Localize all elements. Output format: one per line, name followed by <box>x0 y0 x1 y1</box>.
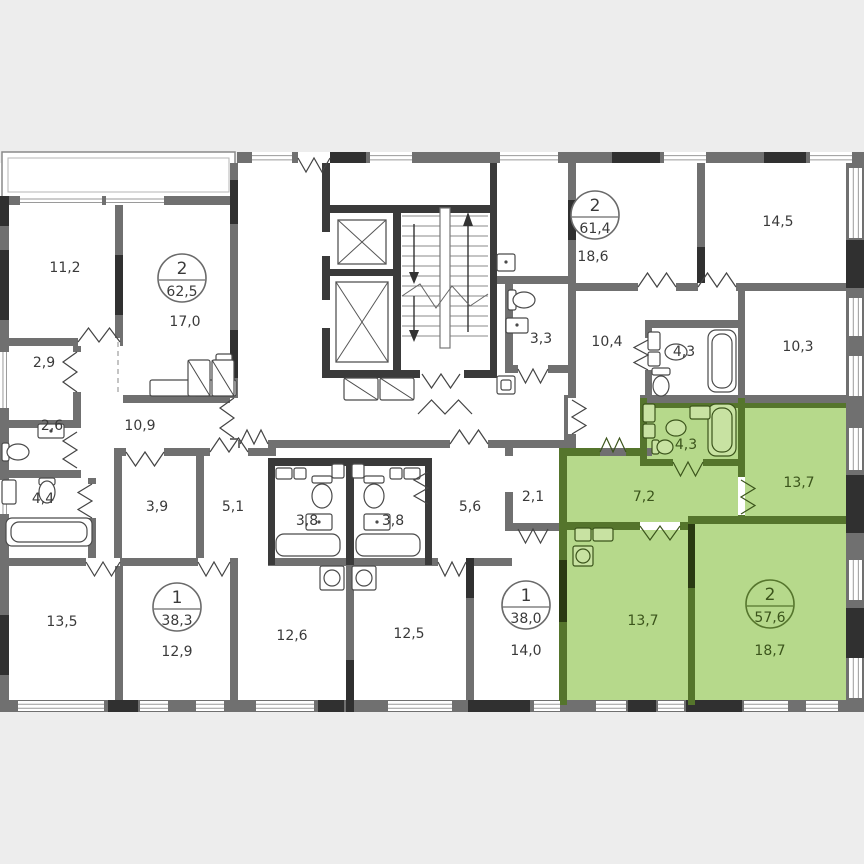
room-area-label: 5,1 <box>222 499 244 515</box>
apartment-badge-57-6-highlighted[interactable]: 2 57,6 <box>746 580 794 628</box>
room-area-label: 12,5 <box>393 626 424 642</box>
svg-text:1: 1 <box>172 588 183 608</box>
svg-text:61,4: 61,4 <box>579 221 610 237</box>
room-area-label: 13,7 <box>783 475 814 491</box>
room-area-label: 12,9 <box>161 644 192 660</box>
svg-text:38,3: 38,3 <box>161 613 192 629</box>
room-area-label: 12,6 <box>276 628 307 644</box>
room-area-label: 4,3 <box>673 344 695 360</box>
svg-text:57,6: 57,6 <box>754 610 785 626</box>
room-area-label: 3,8 <box>382 513 404 529</box>
room-area-label: 3,9 <box>146 499 168 515</box>
room-area-label: 18,7 <box>754 643 785 659</box>
room-area-label: 10,9 <box>124 418 155 434</box>
apartment-badge-38-3: 1 38,3 <box>153 583 201 631</box>
svg-text:62,5: 62,5 <box>166 284 197 300</box>
room-area-label: 3,3 <box>530 331 552 347</box>
room-area-label: 10,3 <box>782 339 813 355</box>
apartment-badge-62-5: 2 62,5 <box>158 254 206 302</box>
room-area-label: 4,4 <box>32 491 54 507</box>
room-area-label: 17,0 <box>169 314 200 330</box>
svg-text:38,0: 38,0 <box>510 611 541 627</box>
floor-plan-image[interactable]: 11,2 17,0 2,9 2,6 10,9 4,4 3,9 5,1 13,5 … <box>0 0 864 864</box>
room-area-label: 10,4 <box>591 334 622 350</box>
room-area-label: 18,6 <box>577 249 608 265</box>
room-area-label: 14,0 <box>510 643 541 659</box>
apartment-badge-61-4: 2 61,4 <box>571 191 619 239</box>
room-area-label: 2,9 <box>33 355 55 371</box>
svg-text:2: 2 <box>177 259 188 279</box>
room-area-label: 5,6 <box>459 499 481 515</box>
room-area-label: 4,3 <box>675 437 697 453</box>
room-area-label: 13,7 <box>627 613 658 629</box>
room-area-label: 13,5 <box>46 614 77 630</box>
room-area-label: 11,2 <box>49 260 80 276</box>
floor-plan-svg: 11,2 17,0 2,9 2,6 10,9 4,4 3,9 5,1 13,5 … <box>0 0 864 864</box>
room-area-label: 2,6 <box>41 418 63 434</box>
room-area-label: 7,2 <box>633 489 655 505</box>
svg-text:2: 2 <box>765 585 776 605</box>
svg-text:2: 2 <box>590 196 601 216</box>
room-area-label: 14,5 <box>762 214 793 230</box>
svg-text:1: 1 <box>521 586 532 606</box>
apartment-badge-38-0: 1 38,0 <box>502 581 550 629</box>
room-area-label: 2,1 <box>522 489 544 505</box>
room-area-label: 3,8 <box>296 513 318 529</box>
